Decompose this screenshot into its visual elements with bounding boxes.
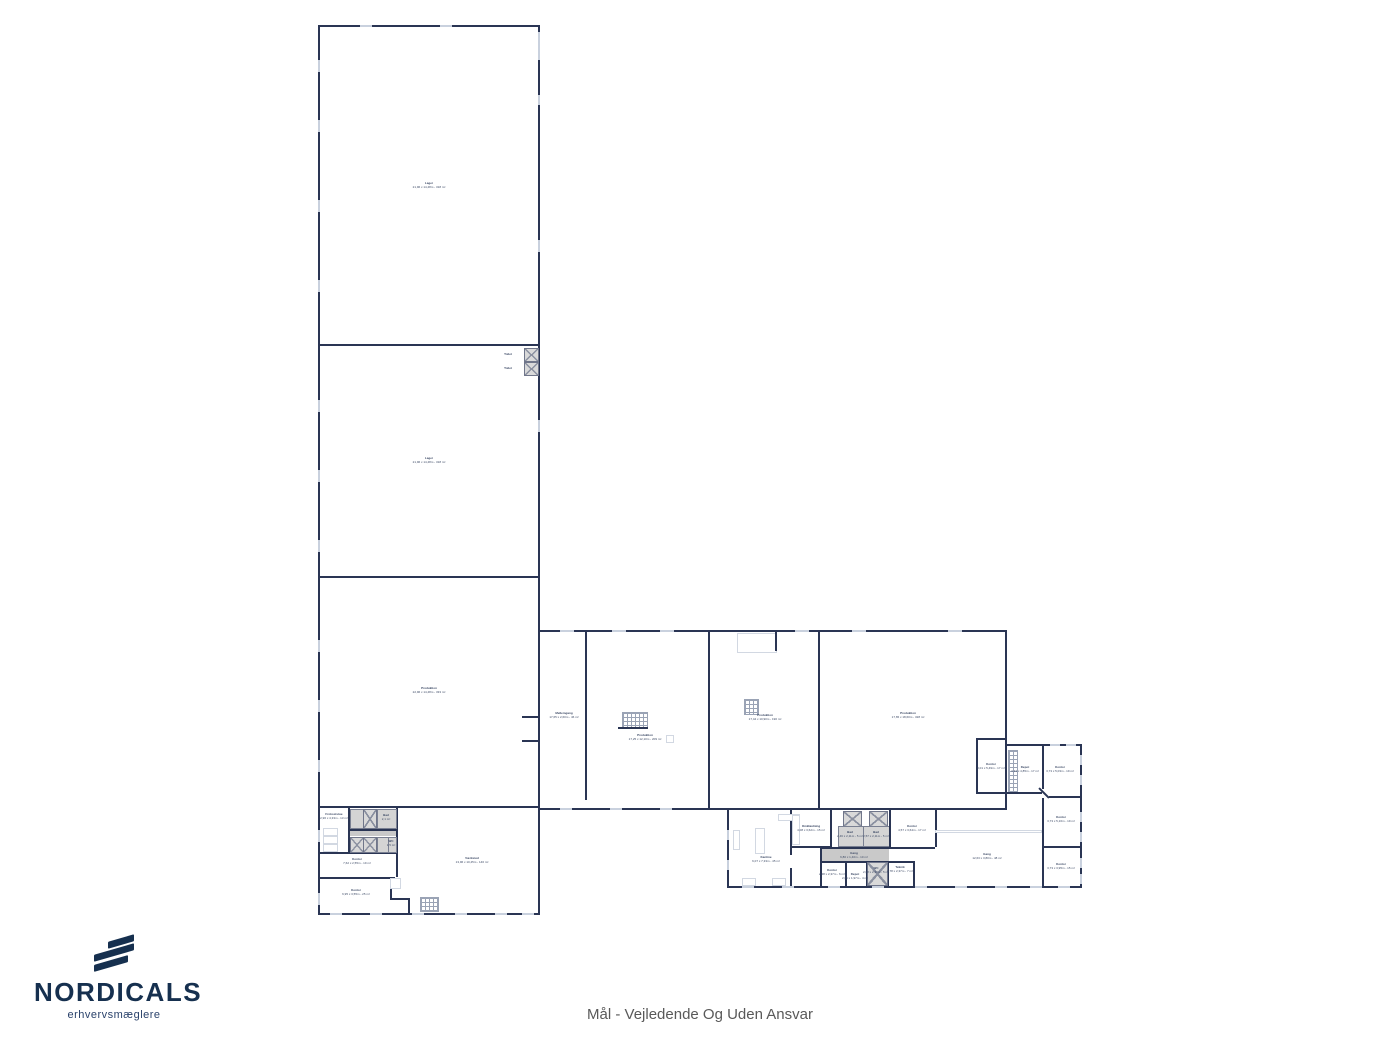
room-label-kantine: Kantine6,07 x 7,33m - 45 m² [752,855,780,863]
window-marker [995,886,1007,888]
window-marker [318,60,320,72]
window-marker [560,630,574,632]
floorplan-sheet: Lager21,96 x 14,48m - 318 m² Lager21,96 … [0,0,1400,1050]
window-marker [318,830,320,842]
room-dims: 17,44 x 10,90m - 190 m² [749,717,782,721]
hatched-room-box [524,362,539,376]
wall [1049,796,1080,798]
wall [408,898,410,915]
room-label-r3: Kontor3,73 x 5,16m - 19 m² [1047,815,1075,823]
window-marker [318,540,320,552]
window-marker [318,760,320,772]
wall [538,25,540,915]
furniture-outline [323,836,338,844]
furniture-outline [755,828,765,854]
room-label-hatch1: Bad2,1 m² [382,813,391,821]
window-marker [1058,886,1070,888]
room-dims: 2,08 x 2,37m - 5 m² [863,870,889,874]
window-marker [495,913,507,915]
room-dims: 6,07 x 7,33m - 45 m² [752,859,780,863]
furniture-outline [737,633,777,653]
wall [708,632,710,808]
room-dims: 17,65 x 2,60m - 46 m² [549,715,578,719]
window-marker [727,830,729,840]
room-dims: 2,46 x 2,11m - 5 m² [837,834,863,838]
furniture-outline [323,844,338,852]
window-marker [1080,858,1082,868]
wall [976,792,1007,794]
window-marker [318,640,320,652]
window-marker [360,25,372,27]
window-marker [318,700,320,712]
window-marker [318,470,320,482]
window-marker [660,808,672,810]
wall [913,861,915,886]
room-label-kontorA: Kontor7,62 x 2,55m - 19 m² [343,857,371,865]
brand-name: NORDICALS [34,977,194,1008]
window-marker [610,808,622,810]
room-dims: 2,57 x 2,11m - 5 m² [863,834,889,838]
wall [318,576,540,578]
room-dims: 2,78 x 2,37m - 7 m² [887,869,913,873]
footer-disclaimer: Mål - Vejledende Og Uden Ansvar [0,1006,1400,1023]
room-dims: 1,5 m² [387,843,396,847]
window-marker [955,886,967,888]
wall [818,632,820,808]
window-marker [412,913,424,915]
window-marker [370,913,382,915]
window-marker [440,25,452,27]
window-marker [1030,886,1042,888]
room-label-r4: Kontor3,73 x 3,95m - 15 m² [1047,862,1075,870]
corridor-band [350,831,396,836]
wall [1007,792,1042,794]
room-label-kontorB: Kontor6,95 x 3,55m - 25 m² [342,888,370,896]
room-dims: 12,63 x 3,80m - 48 m² [972,856,1001,860]
room-label-kontorsq: Kontor3,01 x 5,49m - 17 m² [977,762,1005,770]
room-label-bad2: Bad2,57 x 2,11m - 5 m² [863,830,889,838]
room-label-gang2: Gang12,63 x 3,80m - 48 m² [972,852,1001,860]
wall [775,632,777,651]
window-marker [1080,755,1082,765]
room-label-bad1: Bad2,46 x 2,11m - 5 m² [837,830,863,838]
window-marker [538,95,540,105]
room-dims: 17,65 x 18,60m - 328 m² [892,715,925,719]
furniture-outline [323,828,338,836]
wall [522,716,540,718]
utility-room-box [350,809,364,829]
room-dims: 21,96 x 14,48m - 318 m² [413,460,446,464]
window-marker [455,913,467,915]
room-label-prod2: Produktion17,44 x 10,90m - 190 m² [749,713,782,721]
room-dims: 21,96 x 14,48m - 318 m² [413,185,446,189]
hatched-room-box [869,811,888,827]
window-marker [828,886,840,888]
room-label-vaerksted: Værksted13,96 x 10,45m - 146 m² [456,856,489,864]
wall [820,847,822,886]
wall [1042,744,1044,789]
wall [976,738,1007,740]
wall [540,630,1007,632]
window-marker [915,886,927,888]
window-marker [330,913,342,915]
window-marker [742,886,754,888]
window-marker [560,808,572,810]
room-name: Toilet [504,352,512,356]
room-label-prod3: Produktion17,65 x 18,60m - 328 m² [892,711,925,719]
room-dims: 3,43 x 4,85m - 17 m² [1011,769,1039,773]
window-marker [318,893,320,905]
hatched-room-box [524,348,539,362]
room-dims: 4,57 x 3,64m - 17 m² [898,828,926,832]
stair-grid-symbol [420,897,439,912]
room-label-prod1: Produktion17,25 x 12,10m - 209 m² [629,733,662,741]
wall [935,810,937,847]
furniture-outline [742,878,756,886]
room-label-teknik: Teknik2,78 x 2,37m - 7 m² [887,865,913,873]
window-marker [318,120,320,132]
room-dims: 7,62 x 2,55m - 19 m² [343,861,371,865]
room-label-kontorO2: Kontor4,57 x 3,64m - 17 m² [898,824,926,832]
room-dims: 13,96 x 10,45m - 146 m² [456,860,489,864]
window-marker [852,630,866,632]
room-label-toiletw2: Toilet [504,366,512,370]
stair-grid-symbol [622,712,648,728]
window-marker [1066,744,1076,746]
hatched-room-box [843,811,862,827]
wall [390,898,410,900]
room-label-gang1: Gang6,80 x 1,40m - 10 m² [840,851,868,859]
room-label-hatch2: WC1,5 m² [387,839,396,847]
room-dims: 17,25 x 12,10m - 209 m² [629,737,662,741]
wall [1042,798,1044,888]
wall [318,344,540,346]
room-name: Toilet [504,366,512,370]
room-label-hall3: Produktion22,96 x 14,48m - 333 m² [413,686,446,694]
hatched-room-box [350,837,364,853]
window-marker [538,420,540,432]
room-dims: 2,05 x 1,97m - 4 m² [842,876,868,880]
room-dims: 6,80 x 1,40m - 10 m² [840,855,868,859]
wall [522,740,540,742]
window-marker [1050,744,1060,746]
nordicals-logo-icon [94,938,134,967]
wall [585,632,587,800]
wall [1005,630,1007,810]
room-label-frokost: Frokoststue2,96 x 4,33m - 13 m² [320,812,348,820]
window-marker [612,630,626,632]
wall [318,25,540,27]
room-dims: 2,1 m² [382,817,391,821]
room-dims: 3,01 x 5,49m - 17 m² [977,766,1005,770]
room-dims: 2,96 x 4,33m - 13 m² [320,816,348,820]
wall [618,727,648,729]
window-marker [538,32,540,60]
window-marker [318,200,320,212]
room-label-hall2: Lager21,96 x 14,48m - 318 m² [413,456,446,464]
window-marker [1080,874,1082,884]
window-marker [1080,832,1082,842]
wall [1042,846,1080,848]
window-marker [782,886,794,888]
window-marker [872,886,884,888]
wall [727,886,1082,888]
room-label-hall1: Lager21,96 x 14,48m - 318 m² [413,181,446,189]
wall [790,868,792,886]
room-label-toiletw1: Toilet [504,352,512,356]
room-label-r2: Kontor3,73 x 5,03m - 19 m² [1046,765,1074,773]
wall [318,877,395,879]
window-marker [948,630,962,632]
wall [318,806,540,808]
window-marker [727,860,729,870]
hatched-room-box [363,809,377,829]
room-dims: 3,73 x 5,03m - 19 m² [1046,769,1074,773]
furniture-outline [666,735,674,743]
window-marker [795,630,809,632]
furniture-outline [733,830,740,850]
window-marker [318,280,320,292]
room-dims: 4,08 x 3,62m - 15 m² [797,828,825,832]
room-dims: 22,96 x 14,48m - 333 m² [413,690,446,694]
floor-plan: Lager21,96 x 14,48m - 318 m² Lager21,96 … [0,0,1400,1050]
furniture-outline [772,878,786,886]
window-marker [538,240,540,252]
furniture-outline [390,878,401,889]
room-dims: 3,73 x 5,16m - 19 m² [1047,819,1075,823]
room-dims: 3,73 x 3,95m - 15 m² [1047,866,1075,870]
wall [889,810,891,847]
room-label-wc1: WC2,08 x 2,37m - 5 m² [863,866,889,874]
room-dims: 6,95 x 3,55m - 25 m² [342,892,370,896]
window-marker [1080,775,1082,785]
wall [830,810,832,848]
room-label-r1: Depot3,43 x 4,85m - 17 m² [1011,765,1039,773]
window-marker [318,400,320,412]
hatched-room-box [363,837,377,853]
furniture-outline [935,830,1042,833]
room-label-omklaedning: Omklædning4,08 x 3,62m - 15 m² [797,824,825,832]
window-marker [660,630,674,632]
room-label-corridor: Mellemgang17,65 x 2,60m - 46 m² [549,711,578,719]
window-marker [1080,812,1082,822]
window-marker [522,913,534,915]
wall [727,808,729,888]
